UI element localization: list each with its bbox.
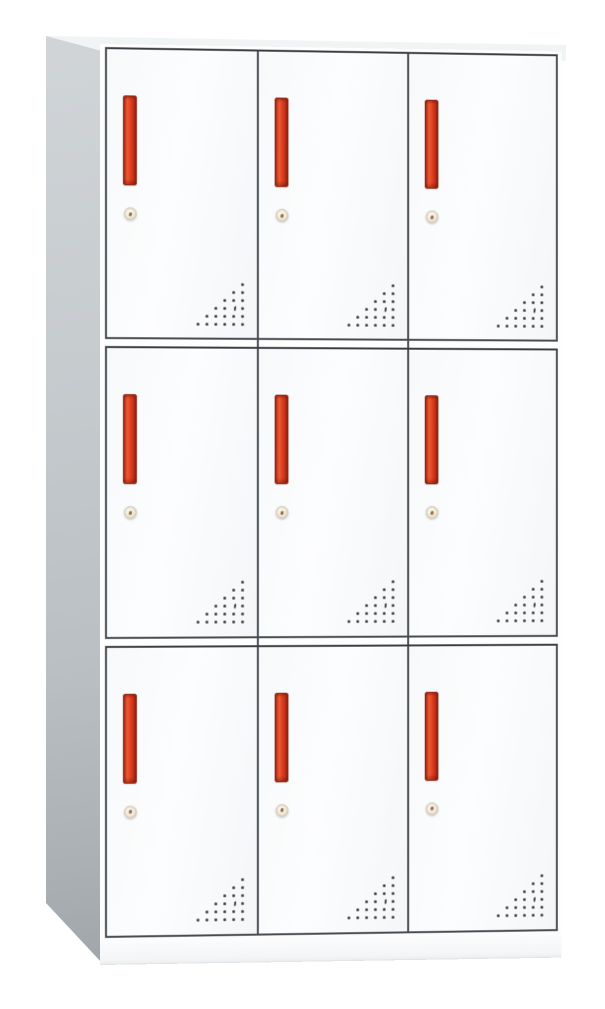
vent-dot-icon xyxy=(365,901,368,904)
vent-cell xyxy=(220,908,229,916)
vent-dot-icon xyxy=(223,307,226,310)
vent-crescent-hole-icon xyxy=(530,307,536,314)
vent-cell xyxy=(529,291,538,299)
vent-cell xyxy=(380,313,389,321)
vent-cell xyxy=(529,306,538,314)
vent-cell xyxy=(202,618,211,626)
vent-holes-icon xyxy=(345,578,398,626)
vent-cell xyxy=(389,617,398,625)
vent-cell xyxy=(362,602,371,610)
vent-cell xyxy=(238,586,247,594)
vent-dot-icon xyxy=(241,307,244,310)
vent-dot-icon xyxy=(232,597,235,600)
vent-cell xyxy=(538,601,547,609)
vent-cell xyxy=(380,890,389,898)
vent-cell xyxy=(529,912,538,920)
vent-crescent-hole-icon xyxy=(231,602,237,609)
vent-cell xyxy=(238,900,247,908)
vent-cell xyxy=(238,594,247,602)
vent-dot-icon xyxy=(223,323,226,326)
vent-dot-icon xyxy=(392,885,395,888)
vent-cell xyxy=(371,305,380,313)
vent-cell xyxy=(345,321,354,329)
vent-dot-icon xyxy=(497,915,500,918)
vent-dot-icon xyxy=(532,883,535,886)
vent-cell xyxy=(211,602,220,610)
keyhole-slot xyxy=(430,510,434,515)
vent-cell xyxy=(529,298,538,306)
vent-dot-icon xyxy=(356,323,359,326)
vent-dot-icon xyxy=(392,900,395,903)
vent-dot-icon xyxy=(383,588,386,591)
vent-dot-icon xyxy=(214,307,217,310)
vent-dot-icon xyxy=(356,612,359,615)
vent-row xyxy=(345,610,398,618)
vent-dot-icon xyxy=(365,308,368,311)
vent-cell xyxy=(229,304,238,312)
vent-dot-icon xyxy=(506,619,509,622)
vent-cell xyxy=(238,280,247,288)
vent-cell xyxy=(389,594,398,602)
vent-dot-icon xyxy=(383,292,386,295)
vent-cell xyxy=(538,912,547,920)
vent-dot-icon xyxy=(374,604,377,607)
vent-cell xyxy=(529,585,538,593)
door-handle-icon xyxy=(425,100,439,189)
vent-dot-icon xyxy=(540,317,543,320)
door-handle-icon xyxy=(425,691,439,780)
door-handle-icon xyxy=(275,692,289,782)
vent-dot-icon xyxy=(523,619,526,622)
vent-cell xyxy=(202,908,211,916)
vent-cell xyxy=(353,321,362,329)
vent-dot-icon xyxy=(205,911,208,914)
vent-dot-icon xyxy=(532,588,535,591)
vent-row xyxy=(494,601,546,609)
keyhole-icon xyxy=(124,805,137,818)
vent-dot-icon xyxy=(232,887,235,890)
vent-dot-icon xyxy=(214,605,217,608)
vent-cell xyxy=(538,609,547,617)
vent-cell xyxy=(520,912,529,920)
vent-cell xyxy=(511,617,520,625)
vent-dot-icon xyxy=(523,309,526,312)
vent-dot-icon xyxy=(365,909,368,912)
door-row-2 xyxy=(105,346,558,638)
door-handle-icon xyxy=(425,396,439,485)
vent-cell xyxy=(538,904,547,912)
vent-dot-icon xyxy=(540,325,543,328)
vent-cell xyxy=(229,610,238,618)
vent-dot-icon xyxy=(241,315,244,318)
vent-cell xyxy=(503,609,512,617)
vent-dot-icon xyxy=(241,887,244,890)
vent-dot-icon xyxy=(241,910,244,913)
vent-row xyxy=(494,585,546,593)
vent-cell xyxy=(220,296,229,304)
vent-cell xyxy=(194,320,203,328)
vent-dot-icon xyxy=(392,308,395,311)
vent-cell xyxy=(389,610,398,618)
vent-dot-icon xyxy=(197,322,200,325)
vent-cell xyxy=(380,618,389,626)
vent-cell xyxy=(229,884,238,892)
door-row-3 xyxy=(105,643,558,938)
vent-row xyxy=(345,617,398,625)
vent-dot-icon xyxy=(540,604,543,607)
vent-dot-icon xyxy=(540,293,543,296)
vent-cell xyxy=(202,312,211,320)
vent-cell xyxy=(345,914,354,922)
keyhole-icon xyxy=(426,210,439,223)
vent-dot-icon xyxy=(223,621,226,624)
vent-crescent-hole-icon xyxy=(381,898,387,905)
vent-cell xyxy=(538,617,547,625)
vent-cell xyxy=(538,291,547,299)
vent-dot-icon xyxy=(232,621,235,624)
vent-row xyxy=(194,618,247,626)
vent-cell xyxy=(371,594,380,602)
vent-dot-icon xyxy=(356,909,359,912)
vent-cell xyxy=(538,314,547,322)
vent-dot-icon xyxy=(232,315,235,318)
vent-dot-icon xyxy=(374,316,377,319)
vent-cell xyxy=(529,617,538,625)
vent-dot-icon xyxy=(514,619,517,622)
vent-dot-icon xyxy=(214,621,217,624)
keyhole-slot xyxy=(280,808,284,813)
vent-cell xyxy=(238,288,247,296)
vent-cell xyxy=(511,322,520,330)
locker-door-r1-c3 xyxy=(407,54,556,340)
vent-crescent-hole-icon xyxy=(231,305,237,312)
vent-cell xyxy=(229,586,238,594)
vent-dot-icon xyxy=(241,581,244,584)
vent-crescent-hole-icon xyxy=(530,601,536,608)
vent-cell xyxy=(238,892,247,900)
vent-cell xyxy=(503,912,512,920)
locker-door-r1-c2 xyxy=(257,51,407,339)
vent-crescent-hole-icon xyxy=(381,306,387,313)
vent-row xyxy=(194,594,247,602)
vent-dot-icon xyxy=(514,604,517,607)
vent-cell xyxy=(371,297,380,305)
door-handle-icon xyxy=(275,395,289,484)
vent-dot-icon xyxy=(241,879,244,882)
vent-cell xyxy=(389,282,398,290)
vent-dot-icon xyxy=(532,914,535,917)
vent-dot-icon xyxy=(356,917,359,920)
vent-cell xyxy=(511,306,520,314)
vent-dot-icon xyxy=(523,301,526,304)
vent-cell xyxy=(520,904,529,912)
vent-dot-icon xyxy=(540,619,543,622)
vent-dot-icon xyxy=(232,911,235,914)
vent-cell xyxy=(211,304,220,312)
vent-dot-icon xyxy=(540,890,543,893)
vent-cell xyxy=(511,912,520,920)
vent-dot-icon xyxy=(383,612,386,615)
vent-dot-icon xyxy=(383,908,386,911)
vent-dot-icon xyxy=(374,901,377,904)
vent-cell xyxy=(229,296,238,304)
door-handle-icon xyxy=(123,394,137,484)
vent-dot-icon xyxy=(374,893,377,896)
vent-cell xyxy=(211,320,220,328)
vent-dot-icon xyxy=(497,620,500,623)
vent-cell xyxy=(229,916,238,924)
vent-cell xyxy=(353,906,362,914)
vent-dot-icon xyxy=(392,580,395,583)
vent-holes-icon xyxy=(494,282,546,330)
vent-crescent-hole-icon xyxy=(381,602,387,609)
vent-row xyxy=(345,914,398,923)
vent-cell xyxy=(220,312,229,320)
vent-cell xyxy=(520,593,529,601)
vent-dot-icon xyxy=(223,299,226,302)
vent-cell xyxy=(538,880,547,888)
vent-cell xyxy=(211,610,220,618)
vent-dot-icon xyxy=(374,300,377,303)
vent-cell xyxy=(389,290,398,298)
vent-holes-icon xyxy=(194,876,247,925)
vent-dot-icon xyxy=(241,291,244,294)
vent-cell xyxy=(220,916,229,924)
locker-door-r3-c2 xyxy=(257,646,407,933)
keyhole-slot xyxy=(280,213,284,218)
vent-cell xyxy=(389,906,398,914)
vent-cell xyxy=(529,888,538,896)
vent-dot-icon xyxy=(540,875,543,878)
vent-cell xyxy=(503,322,512,330)
door-handle-icon xyxy=(275,97,289,187)
vent-dot-icon xyxy=(514,899,517,902)
vent-dot-icon xyxy=(532,325,535,328)
vent-row xyxy=(494,322,546,330)
vent-cell xyxy=(529,593,538,601)
vent-dot-icon xyxy=(383,916,386,919)
keyhole-icon xyxy=(124,207,137,220)
vent-dot-icon xyxy=(514,317,517,320)
vent-cell xyxy=(520,601,529,609)
vent-dot-icon xyxy=(365,612,368,615)
vent-cell xyxy=(229,618,238,626)
vent-dot-icon xyxy=(241,597,244,600)
vent-cell xyxy=(380,289,389,297)
vent-cell xyxy=(353,610,362,618)
vent-holes-icon xyxy=(194,280,247,328)
vent-cell xyxy=(211,916,220,924)
vent-dot-icon xyxy=(232,895,235,898)
vent-cell xyxy=(529,601,538,609)
vent-dot-icon xyxy=(497,324,500,327)
vent-dot-icon xyxy=(540,588,543,591)
vent-dot-icon xyxy=(374,596,377,599)
vent-cell xyxy=(220,304,229,312)
vent-cell xyxy=(238,578,247,586)
vent-cell xyxy=(380,610,389,618)
vent-dot-icon xyxy=(506,907,509,910)
vent-cell xyxy=(362,618,371,626)
vent-cell xyxy=(389,898,398,906)
vent-dot-icon xyxy=(356,620,359,623)
vent-cell xyxy=(520,306,529,314)
vent-dot-icon xyxy=(392,316,395,319)
vent-cell xyxy=(503,617,512,625)
vent-cell xyxy=(380,586,389,594)
vent-dot-icon xyxy=(392,612,395,615)
vent-cell xyxy=(538,322,547,330)
vent-cell xyxy=(389,874,398,882)
vent-cell xyxy=(202,916,211,924)
vent-cell xyxy=(229,908,238,916)
vent-cell xyxy=(538,888,547,896)
vent-cell xyxy=(520,609,529,617)
vent-cell xyxy=(389,321,398,329)
vent-row xyxy=(194,586,247,594)
vent-dot-icon xyxy=(223,919,226,922)
vent-cell xyxy=(238,618,247,626)
locker-door-r3-c3 xyxy=(407,645,556,931)
vent-cell xyxy=(538,593,547,601)
base-plinth xyxy=(100,931,562,965)
vent-cell xyxy=(529,322,538,330)
vent-cell xyxy=(238,884,247,892)
keyhole-icon xyxy=(276,209,289,222)
vent-dot-icon xyxy=(205,621,208,624)
vent-dot-icon xyxy=(374,324,377,327)
vent-dot-icon xyxy=(214,903,217,906)
door-handle-icon xyxy=(123,95,137,185)
vent-cell xyxy=(380,898,389,906)
vent-dot-icon xyxy=(392,300,395,303)
vent-cell xyxy=(520,322,529,330)
vent-cell xyxy=(389,313,398,321)
vent-dot-icon xyxy=(223,605,226,608)
vent-dot-icon xyxy=(223,895,226,898)
vent-dot-icon xyxy=(241,621,244,624)
vent-cell xyxy=(362,610,371,618)
vent-dot-icon xyxy=(532,293,535,296)
vent-cell xyxy=(371,321,380,329)
vent-cell xyxy=(494,912,503,920)
vent-cell xyxy=(494,617,503,625)
vent-cell xyxy=(538,578,547,586)
keyhole-icon xyxy=(124,506,137,519)
vent-dot-icon xyxy=(365,324,368,327)
vent-cell xyxy=(220,320,229,328)
vent-row xyxy=(194,916,247,925)
vent-dot-icon xyxy=(383,324,386,327)
vent-dot-icon xyxy=(392,604,395,607)
vent-cell xyxy=(371,313,380,321)
vent-cell xyxy=(380,914,389,922)
vent-cell xyxy=(511,896,520,904)
vent-cell xyxy=(238,296,247,304)
vent-cell xyxy=(238,916,247,924)
vent-cell xyxy=(389,586,398,594)
vent-cell xyxy=(238,320,247,328)
vent-dot-icon xyxy=(540,898,543,901)
vent-crescent-hole-icon xyxy=(530,896,536,903)
vent-cell xyxy=(229,900,238,908)
vent-cell xyxy=(389,578,398,586)
vent-dot-icon xyxy=(506,317,509,320)
vent-dot-icon xyxy=(392,292,395,295)
vent-cell xyxy=(520,896,529,904)
vent-cell xyxy=(538,283,547,291)
vent-cell xyxy=(520,888,529,896)
vent-cell xyxy=(389,882,398,890)
vent-cell xyxy=(362,313,371,321)
locker-door-r2-c2 xyxy=(257,349,407,636)
vent-dot-icon xyxy=(392,892,395,895)
vent-dot-icon xyxy=(532,612,535,615)
vent-dot-icon xyxy=(232,291,235,294)
vent-dot-icon xyxy=(523,612,526,615)
vent-dot-icon xyxy=(540,580,543,583)
vent-cell xyxy=(371,610,380,618)
vent-dot-icon xyxy=(205,323,208,326)
vent-row xyxy=(194,578,247,586)
vent-cell xyxy=(229,320,238,328)
vent-dot-icon xyxy=(214,911,217,914)
vent-dot-icon xyxy=(383,893,386,896)
vent-cell xyxy=(511,609,520,617)
vent-row xyxy=(494,912,546,921)
vent-cell xyxy=(238,876,247,884)
vent-dot-icon xyxy=(365,620,368,623)
vent-dot-icon xyxy=(540,301,543,304)
vent-row xyxy=(345,594,398,602)
vent-dot-icon xyxy=(392,908,395,911)
vent-cell xyxy=(520,617,529,625)
vent-dot-icon xyxy=(374,612,377,615)
vent-dot-icon xyxy=(365,604,368,607)
vent-dot-icon xyxy=(374,308,377,311)
vent-dot-icon xyxy=(392,284,395,287)
door-row-1 xyxy=(105,47,558,342)
vent-cell xyxy=(371,602,380,610)
vent-dot-icon xyxy=(523,899,526,902)
vent-dot-icon xyxy=(223,903,226,906)
vent-dot-icon xyxy=(540,596,543,599)
vent-cell xyxy=(238,602,247,610)
vent-dot-icon xyxy=(383,885,386,888)
vent-dot-icon xyxy=(532,891,535,894)
vent-cell xyxy=(371,890,380,898)
vent-dot-icon xyxy=(232,299,235,302)
vent-dot-icon xyxy=(383,620,386,623)
vent-cell xyxy=(220,900,229,908)
vent-dot-icon xyxy=(223,597,226,600)
vent-cell xyxy=(380,594,389,602)
vent-cell xyxy=(503,904,512,912)
keyhole-slot xyxy=(430,806,434,811)
vent-dot-icon xyxy=(540,309,543,312)
vent-dot-icon xyxy=(514,907,517,910)
vent-cell xyxy=(538,306,547,314)
vent-dot-icon xyxy=(506,612,509,615)
vent-crescent-hole-icon xyxy=(231,900,237,907)
keyhole-slot xyxy=(128,510,132,515)
vent-cell xyxy=(238,908,247,916)
keyhole-slot xyxy=(280,510,284,515)
vent-row xyxy=(345,602,398,610)
vent-cell xyxy=(220,892,229,900)
vent-row xyxy=(345,578,398,586)
vent-cell xyxy=(520,314,529,322)
